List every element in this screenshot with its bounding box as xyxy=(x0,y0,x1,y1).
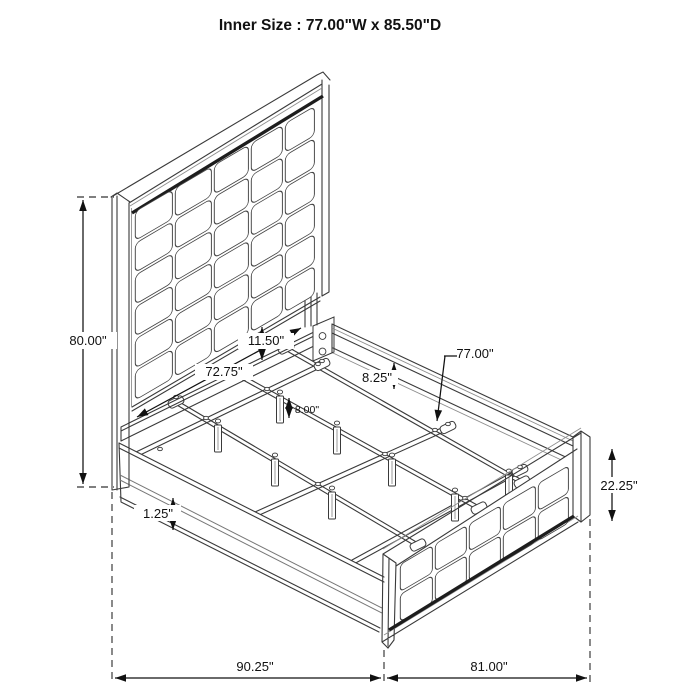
dim-overall-depth: 90.25" xyxy=(236,659,274,674)
dim-slat-length: 77.00" xyxy=(456,346,494,361)
dim-footboard-height: 22.25" xyxy=(600,478,638,493)
bed-diagram-svg: Inner Size : 77.00"W x 85.50"D xyxy=(0,0,700,700)
right-side-rail xyxy=(332,324,573,465)
footboard xyxy=(382,428,590,648)
dim-headboard-height: 80.00" xyxy=(69,333,107,348)
bed-dimension-diagram: Inner Size : 77.00"W x 85.50"D xyxy=(0,0,700,700)
dim-leg-height: 8.00" xyxy=(295,404,319,416)
dim-rail-trim: 1.25" xyxy=(143,506,173,521)
dim-side-rail-height: 8.25" xyxy=(362,370,392,385)
dim-overall-width: 81.00" xyxy=(470,659,508,674)
headboard-tufted-panel xyxy=(135,106,314,400)
diagram-title: Inner Size : 77.00"W x 85.50"D xyxy=(219,17,441,34)
dim-panel-clearance: 11.50" xyxy=(248,333,285,348)
dim-head-rail-width: 72.75" xyxy=(205,364,243,379)
